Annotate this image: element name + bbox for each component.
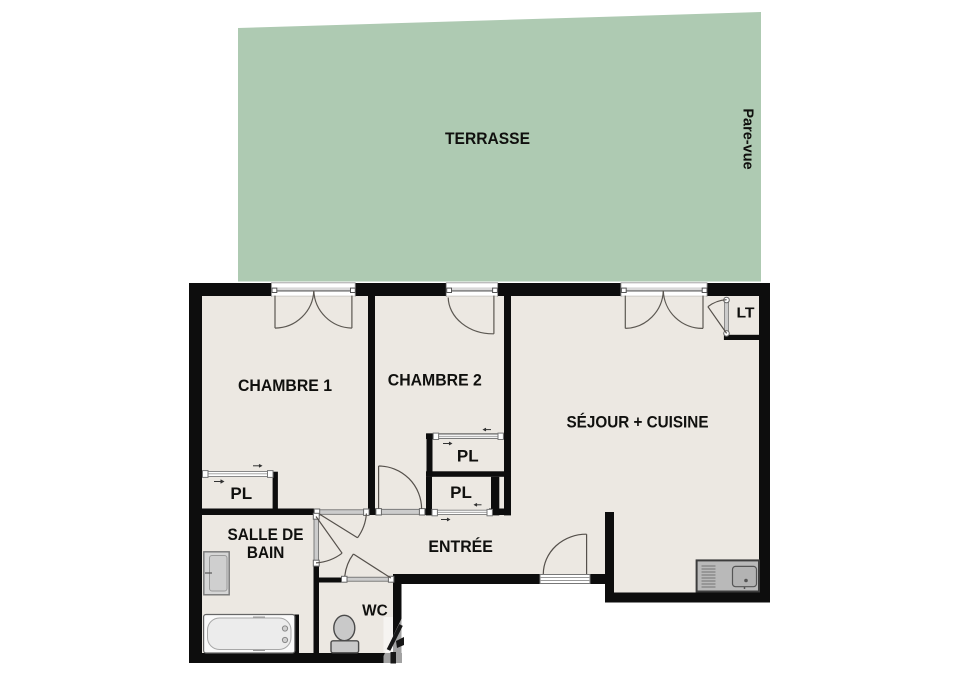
svg-text:SALLE DE: SALLE DE [228,525,304,544]
svg-text:LT: LT [737,305,755,322]
svg-text:SÉJOUR + CUISINE: SÉJOUR + CUISINE [567,413,709,432]
svg-text:ENTRÉE: ENTRÉE [428,537,493,556]
svg-text:CHAMBRE 2: CHAMBRE 2 [388,371,482,390]
svg-text:BAIN: BAIN [247,543,285,562]
svg-text:Pare-vue: Pare-vue [739,108,755,169]
svg-text:PL: PL [230,484,252,503]
svg-text:PL: PL [450,483,472,502]
svg-text:CHAMBRE 1: CHAMBRE 1 [238,376,332,395]
svg-text:WC: WC [362,602,388,619]
svg-text:PL: PL [457,447,479,466]
svg-text:TERRASSE: TERRASSE [445,129,530,148]
